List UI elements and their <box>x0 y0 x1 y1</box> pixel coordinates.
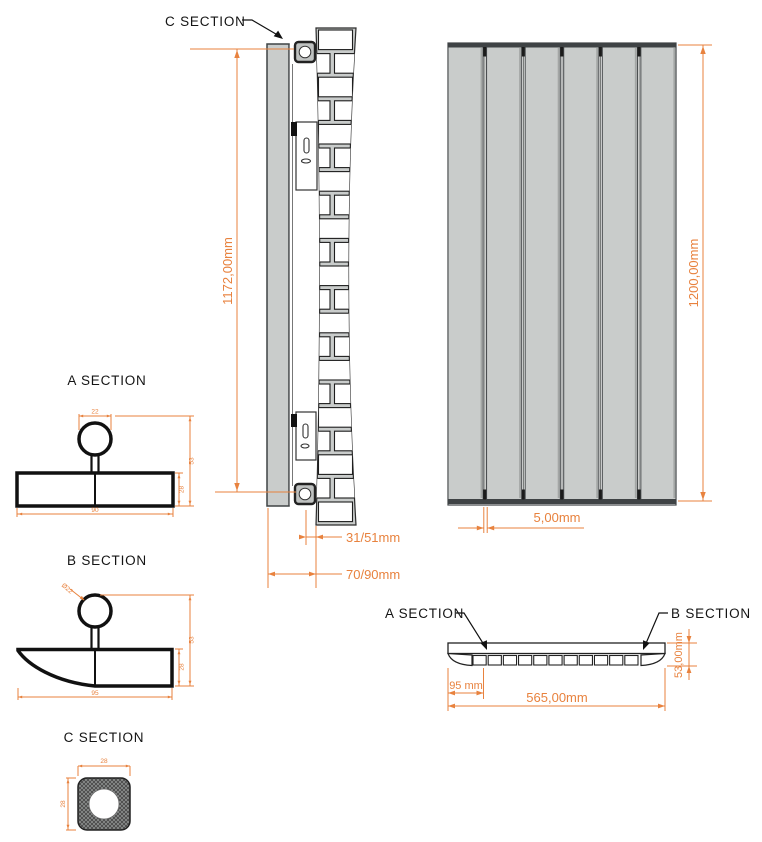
panel-shade <box>635 48 637 498</box>
fin-rect <box>594 656 607 666</box>
drawing-primitive <box>296 122 317 190</box>
panel-back-slot <box>290 45 297 505</box>
brick <box>319 219 353 239</box>
arrowhead <box>18 513 22 516</box>
brick <box>335 242 356 262</box>
arrowhead <box>687 636 692 643</box>
brick <box>319 455 353 475</box>
top-view <box>448 643 665 666</box>
brick <box>335 478 356 498</box>
arrowhead <box>178 474 181 478</box>
arrowhead <box>700 46 705 54</box>
panel-shade <box>673 48 675 498</box>
bracket-keyhole-slot <box>303 424 308 438</box>
gap-notch-bottom <box>483 490 486 500</box>
brick <box>319 124 353 144</box>
arrowhead <box>79 415 83 418</box>
dim-panel-gap: 5,00mm <box>534 510 581 525</box>
a-tube-circle <box>79 423 111 455</box>
top-view-b-callout-label: B SECTION <box>671 606 751 621</box>
fin-rect <box>549 656 562 666</box>
c-section-title: C SECTION <box>64 730 145 745</box>
brick <box>335 290 356 310</box>
panel-shade <box>481 48 483 498</box>
brick <box>313 290 330 310</box>
arrowhead <box>448 704 455 709</box>
panel-shade <box>596 48 598 498</box>
c-section-callout-label: C SECTION <box>165 14 246 29</box>
gap-notch-top <box>599 47 602 57</box>
bracket-screw-slot <box>302 159 311 163</box>
bracket-keyhole-slot <box>304 138 309 153</box>
a-dim-panel-width: 90 <box>91 507 99 514</box>
top-tube-hole <box>299 46 311 58</box>
arrowhead <box>178 650 181 654</box>
arrowhead <box>477 526 484 531</box>
fin-rect <box>473 656 486 666</box>
c-dim-width: 28 <box>100 758 108 765</box>
section-b-drawing <box>18 595 172 686</box>
arrowhead <box>316 535 323 540</box>
top-header-bar <box>448 43 676 47</box>
technical-drawing: C SECTION A SECTION B SECTION C SECTION … <box>0 0 762 842</box>
brick <box>335 195 356 215</box>
dim-total-depth: 53,00mm <box>673 632 685 678</box>
bottom-header-bar <box>448 500 676 505</box>
brick <box>319 172 353 192</box>
section-a-drawing <box>17 423 173 506</box>
top-view-a-callout-label: A SECTION <box>385 606 464 621</box>
fin-rect <box>519 656 532 666</box>
arrowhead <box>700 492 705 500</box>
fin-rect <box>564 656 577 666</box>
dim-side-height: 1172,00mm <box>220 237 235 305</box>
panel-shade <box>558 48 560 498</box>
dim-front-height: 1200,00mm <box>686 239 701 308</box>
bracket-screw-slot <box>301 444 309 448</box>
fin-rect <box>625 656 638 666</box>
front-panel <box>525 47 560 500</box>
gap-notch-top <box>560 47 563 57</box>
arrowhead <box>687 666 692 673</box>
radiator-drawing-svg: C SECTION A SECTION B SECTION C SECTION … <box>0 0 762 842</box>
front-panel <box>564 47 599 500</box>
brick <box>313 242 330 262</box>
front-panels <box>448 47 676 500</box>
gap-notch-bottom <box>560 490 563 500</box>
front-panel <box>448 47 483 500</box>
dim-panel-to-wall: 70/90mm <box>346 567 400 582</box>
b-section-title: B SECTION <box>67 553 147 568</box>
brick <box>319 360 353 380</box>
radiator-side-panel <box>267 44 289 506</box>
side-view <box>267 28 356 525</box>
fin-rect <box>534 656 547 666</box>
brick <box>319 408 353 428</box>
gap-notch-top <box>522 47 525 57</box>
front-panel <box>487 47 522 500</box>
arrowhead <box>189 501 192 505</box>
b-dim-panel-depth: 28 <box>179 663 186 671</box>
arrowhead <box>189 596 192 600</box>
top-view-left-end <box>448 654 472 666</box>
brick <box>335 384 356 404</box>
dim-tube-to-wall: 31/51mm <box>346 530 400 545</box>
gap-notch-bottom <box>637 490 640 500</box>
b-dim-panel-width: 95 <box>91 690 99 697</box>
c-tube-hole <box>89 789 119 819</box>
arrowhead <box>78 765 82 768</box>
dim-first-section: 95 mm <box>449 680 483 692</box>
front-panel <box>641 47 676 500</box>
front-panel <box>602 47 637 500</box>
top-view-fins <box>473 656 638 666</box>
brick <box>319 502 353 522</box>
fin-rect <box>488 656 501 666</box>
brick <box>313 337 330 357</box>
arrowhead <box>309 572 316 577</box>
bracket-hook-tab <box>291 414 297 427</box>
brick <box>335 148 356 168</box>
section-c-drawing <box>78 778 130 830</box>
gap-notch-bottom <box>522 490 525 500</box>
brick <box>319 77 353 97</box>
gap-notch-bottom <box>599 490 602 500</box>
b-dim-total-depth: 53 <box>189 636 196 644</box>
brick <box>313 101 330 121</box>
brick <box>319 266 353 286</box>
arrowhead <box>126 765 130 768</box>
arrowhead <box>234 483 239 491</box>
a-dim-total-depth: 53 <box>189 457 196 465</box>
bottom-tube-hole <box>299 488 311 500</box>
brick <box>319 313 353 333</box>
arrowhead <box>268 572 275 577</box>
a-dim-panel-depth: 28 <box>179 486 186 494</box>
arrowhead <box>67 779 70 783</box>
c-dim-height: 28 <box>60 800 67 808</box>
arrowhead <box>189 681 192 685</box>
a-section-title: A SECTION <box>67 373 146 388</box>
top-view-bar <box>448 643 665 654</box>
brick <box>335 54 356 74</box>
front-view <box>448 43 676 505</box>
arrowhead <box>178 501 181 505</box>
brick <box>313 195 330 215</box>
fin-rect <box>610 656 623 666</box>
arrowhead <box>234 50 239 58</box>
arrowhead <box>189 417 192 421</box>
brick <box>335 337 356 357</box>
fin-rect <box>503 656 516 666</box>
bracket-hook-tab <box>291 122 297 136</box>
fin-rect <box>579 656 592 666</box>
brick <box>313 384 330 404</box>
arrowhead <box>274 31 286 42</box>
panel-shade <box>519 48 521 498</box>
arrowhead <box>658 704 665 709</box>
gap-notch-top <box>637 47 640 57</box>
brick <box>319 30 353 50</box>
arrowhead <box>168 696 172 699</box>
arrowhead <box>67 825 70 829</box>
arrowhead <box>299 535 306 540</box>
b-dim-tube-dia: Ø22 <box>60 582 74 596</box>
a-dim-tube-width: 22 <box>91 409 99 416</box>
arrowhead <box>18 696 22 699</box>
top-view-right-end <box>641 654 665 666</box>
arrowhead <box>178 681 181 685</box>
gap-notch-top <box>483 47 486 57</box>
arrowhead <box>487 526 494 531</box>
arrowhead <box>107 415 111 418</box>
dim-total-width: 565,00mm <box>526 690 587 705</box>
arrowhead <box>168 513 172 516</box>
